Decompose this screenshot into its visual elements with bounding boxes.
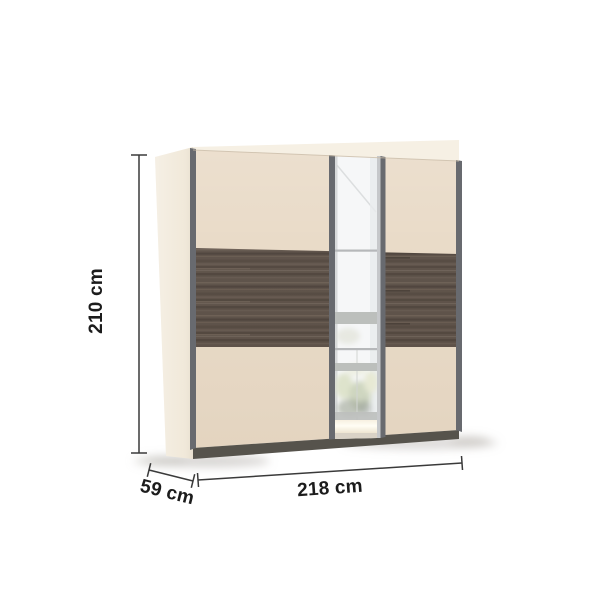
window-bar bbox=[335, 312, 377, 324]
product-image: 210 cm 59 cm 218 cm bbox=[0, 0, 600, 600]
mirror-inner-shadow bbox=[335, 156, 338, 439]
front-sheen bbox=[193, 150, 459, 448]
edge-strip-left bbox=[190, 148, 196, 450]
mirror-bottom-strip bbox=[335, 433, 377, 439]
edge-strip-mirror-right bbox=[381, 156, 386, 438]
window-bar bbox=[335, 412, 377, 420]
mirror-divider bbox=[335, 348, 377, 350]
mirror-door bbox=[335, 156, 381, 439]
mirror-frame-right bbox=[377, 156, 381, 438]
mirror-bottom-glow bbox=[335, 420, 377, 433]
wardrobe bbox=[155, 140, 462, 459]
mirror-edge-shading bbox=[370, 156, 377, 439]
height-label: 210 cm bbox=[86, 268, 107, 334]
edge-strip-mirror-left bbox=[329, 155, 335, 440]
window-bar bbox=[335, 363, 377, 371]
edge-strip-right bbox=[456, 160, 462, 432]
mirror-divider bbox=[335, 250, 377, 252]
wardrobe-render: 210 cm 59 cm 218 cm bbox=[0, 0, 600, 600]
